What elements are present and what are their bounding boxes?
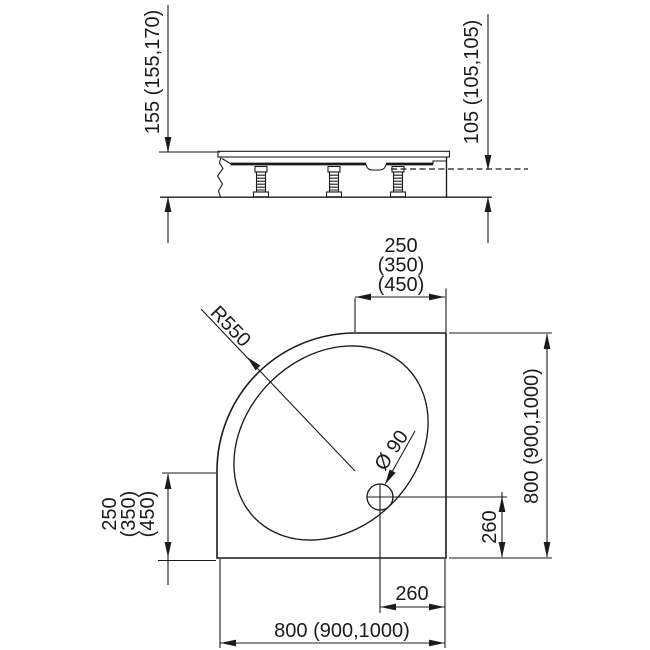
dim-arrow <box>165 137 172 152</box>
dim-arrow <box>165 474 172 490</box>
dim-top-offset: 250 (350) (450) <box>355 235 446 332</box>
dim-arrow <box>247 357 260 370</box>
drawing-svg: 155 (155,170) 105 (105,105) R550 Ø 90 25… <box>0 0 650 650</box>
adjustable-foot <box>327 167 342 197</box>
top-offset-line-3: (450) <box>378 274 425 296</box>
dim-floor-height: 105 (105,105) <box>461 14 491 243</box>
total-height-label: 155 (155,170) <box>142 10 164 135</box>
left-offset-line-3: (450) <box>137 491 159 538</box>
depth-label: 800 (900,1000) <box>521 368 543 504</box>
drain-offset-right-label: 260 <box>479 510 501 543</box>
floor-height-label: 105 (105,105) <box>461 20 483 145</box>
dim-left-offset: 250 (350) (450) <box>99 473 216 585</box>
adjustable-foot <box>254 167 269 197</box>
plan-view <box>195 307 507 613</box>
radius-label: R550 <box>206 302 255 352</box>
dim-total-height: 155 (155,170) <box>142 5 220 243</box>
dim-arrow <box>544 542 551 558</box>
dim-arrow <box>429 640 445 647</box>
dim-arrow <box>356 294 372 301</box>
floor-ledge-line <box>433 161 447 164</box>
dim-arrow <box>485 155 492 170</box>
dim-arrow <box>429 604 445 611</box>
dim-arrow <box>485 197 492 212</box>
drain-offset-bottom-label: 260 <box>395 583 428 605</box>
dim-arrow <box>544 334 551 350</box>
dim-arrow <box>165 542 172 558</box>
left-break-line <box>218 157 224 197</box>
drain-trap-dip <box>366 163 387 170</box>
dim-drain-offset-right: 260 <box>479 492 505 558</box>
dim-arrow <box>165 197 172 212</box>
dim-arrow <box>221 640 237 647</box>
width-label: 800 (900,1000) <box>274 620 410 642</box>
adjustable-foot <box>391 167 406 197</box>
dim-arrow <box>429 294 445 301</box>
dim-arrow <box>499 497 506 513</box>
technical-drawing-shower-tray: 155 (155,170) 105 (105,105) R550 Ø 90 25… <box>0 0 650 650</box>
tray-rim-profile <box>218 151 450 157</box>
side-view <box>160 151 528 197</box>
dim-arrow <box>381 604 397 611</box>
